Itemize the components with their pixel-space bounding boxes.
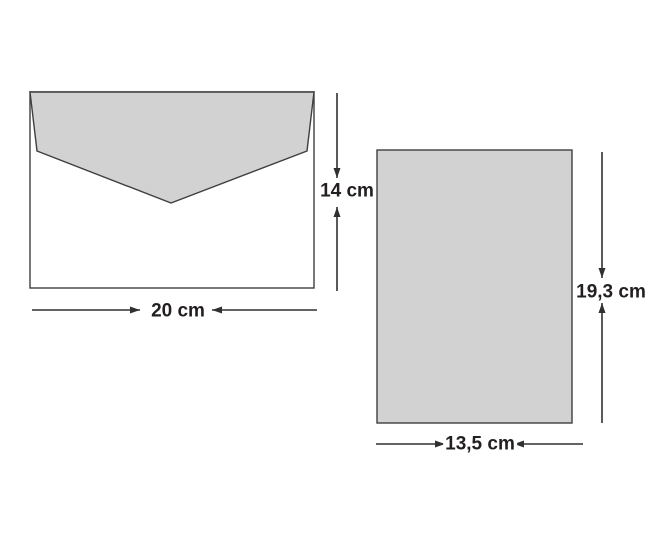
- card-rectangle: [377, 150, 572, 423]
- envelope-height-label: 14 cm: [318, 182, 376, 201]
- diagram-canvas: 14 cm 20 cm 19,3 cm 13,5 cm: [0, 0, 670, 543]
- card-width-label: 13,5 cm: [443, 435, 517, 454]
- card-height-label: 19,3 cm: [574, 283, 648, 302]
- envelope-width-label: 20 cm: [149, 302, 207, 321]
- envelope-and-card-diagram: [0, 0, 670, 543]
